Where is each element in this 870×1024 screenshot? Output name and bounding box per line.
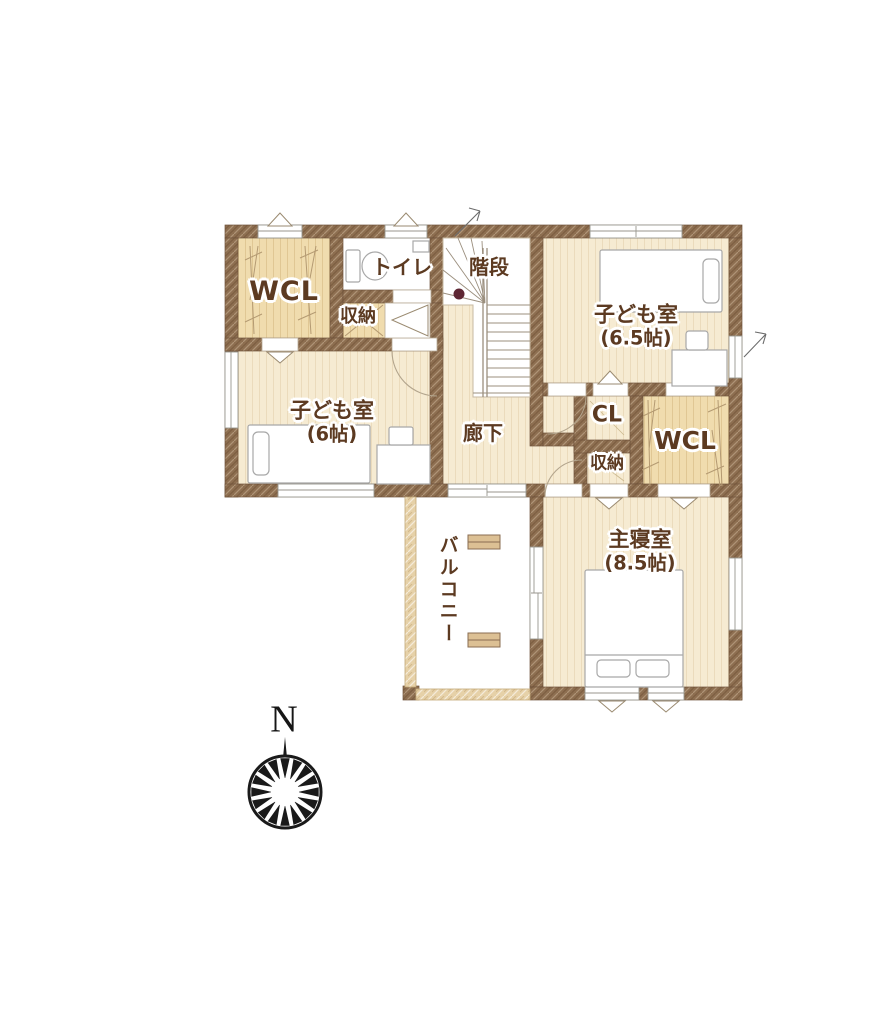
label-wcl-right: WCL (654, 427, 716, 455)
window-kids-small-south (278, 484, 374, 497)
floor-plan-drawing (0, 0, 870, 1024)
door-wcl-right-south (658, 484, 710, 497)
window-master-east (729, 558, 742, 630)
compass-hub (271, 778, 299, 806)
door-master-bedroom (545, 484, 582, 497)
label-compass-north: N (270, 699, 297, 742)
label-toilet: トイレ (372, 256, 432, 278)
window-kids-small-west (225, 352, 238, 428)
label-master-bedroom: 主寝室 (8.5帖) (604, 528, 675, 573)
label-closet-cl: CL (592, 404, 622, 429)
door-toilet (393, 290, 431, 303)
window-master-south-1 (585, 687, 639, 700)
label-kids-room-large: 子ども室 (6.5帖) (594, 303, 678, 348)
label-storage-upper: 収納 (340, 307, 376, 327)
bed-master (585, 570, 683, 687)
window-kids-large-east (729, 336, 742, 378)
label-wcl-left: WCL (249, 277, 319, 307)
label-kids-room-small: 子ども室 (6帖) (290, 399, 374, 444)
window-master-south-2 (648, 687, 684, 700)
compass-rose (249, 737, 321, 828)
door-storage-middle (590, 484, 628, 497)
door-kids-room-large (548, 383, 586, 396)
label-storage-middle: 収納 (590, 454, 624, 473)
door-closet-cl (593, 383, 628, 396)
label-stairs: 階段 (469, 256, 509, 278)
door-wcl-left (262, 338, 298, 351)
floor-balcony (416, 497, 530, 689)
window-toilet (385, 225, 427, 238)
floor-nook-strip (530, 446, 543, 484)
label-balcony: バルコニー (436, 535, 457, 645)
door-kids-room-small (392, 338, 437, 351)
floor-plan-page: WCL トイレ 階段 子ども室 (6.5帖) 収納 子ども室 (6帖) 廊下 C… (0, 0, 870, 1024)
stair-newel-dot (454, 289, 465, 300)
window-wcl-left (258, 225, 302, 238)
label-hallway: 廊下 (463, 422, 503, 444)
